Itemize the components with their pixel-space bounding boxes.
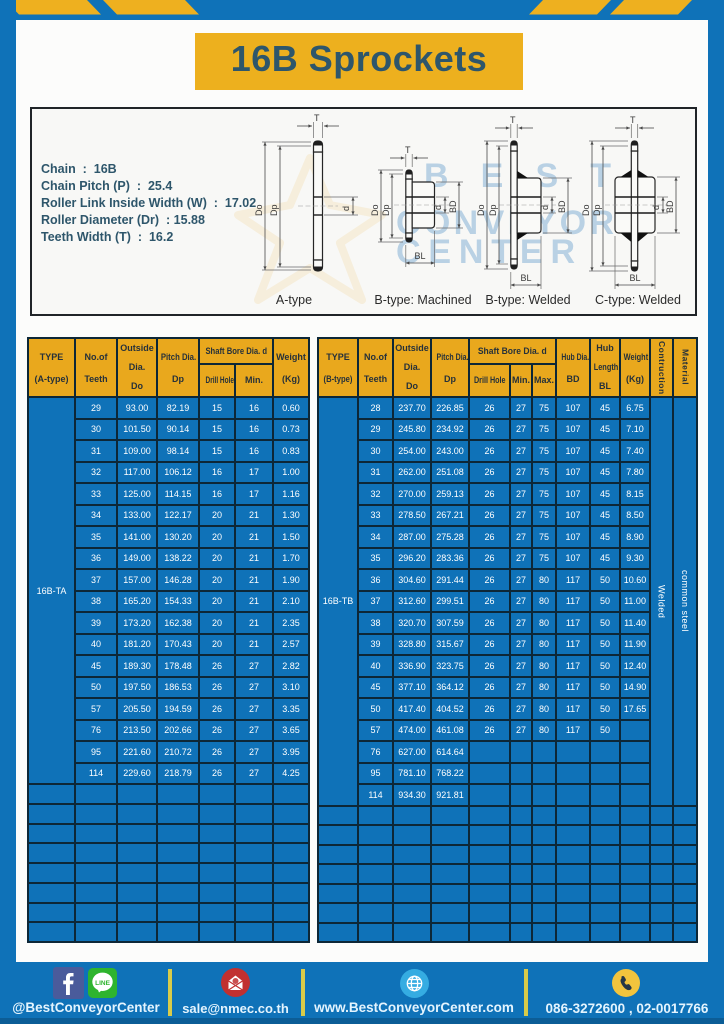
svg-text:BL: BL — [414, 251, 425, 261]
svg-text:BL: BL — [520, 273, 531, 283]
svg-text:d: d — [341, 206, 351, 211]
svg-text:Dp: Dp — [381, 204, 391, 216]
svg-text:A-type: A-type — [276, 293, 312, 307]
svg-text:C-type: Welded: C-type: Welded — [595, 293, 681, 307]
svg-text:B-type: Machined: B-type: Machined — [374, 293, 471, 307]
svg-text:Do: Do — [370, 204, 380, 216]
svg-text:d: d — [540, 205, 550, 210]
svg-text:T: T — [314, 113, 320, 123]
svg-text:Dp: Dp — [488, 204, 498, 216]
svg-text:T: T — [630, 115, 636, 125]
svg-text:B-type: Welded: B-type: Welded — [485, 293, 570, 307]
svg-text:BD: BD — [448, 200, 458, 213]
svg-text:Dp: Dp — [592, 204, 602, 216]
svg-text:Dp: Dp — [269, 204, 279, 216]
svg-text:Do: Do — [581, 204, 591, 216]
svg-text:Do: Do — [254, 204, 264, 216]
svg-text:BL: BL — [629, 273, 640, 283]
svg-text:BD: BD — [665, 200, 675, 213]
svg-text:d: d — [433, 205, 443, 210]
svg-text:T: T — [405, 145, 411, 155]
svg-text:T: T — [510, 115, 516, 125]
svg-text:d: d — [651, 205, 661, 210]
svg-text:LINE: LINE — [95, 980, 110, 987]
svg-text:BD: BD — [557, 200, 567, 213]
svg-text:Do: Do — [476, 204, 486, 216]
